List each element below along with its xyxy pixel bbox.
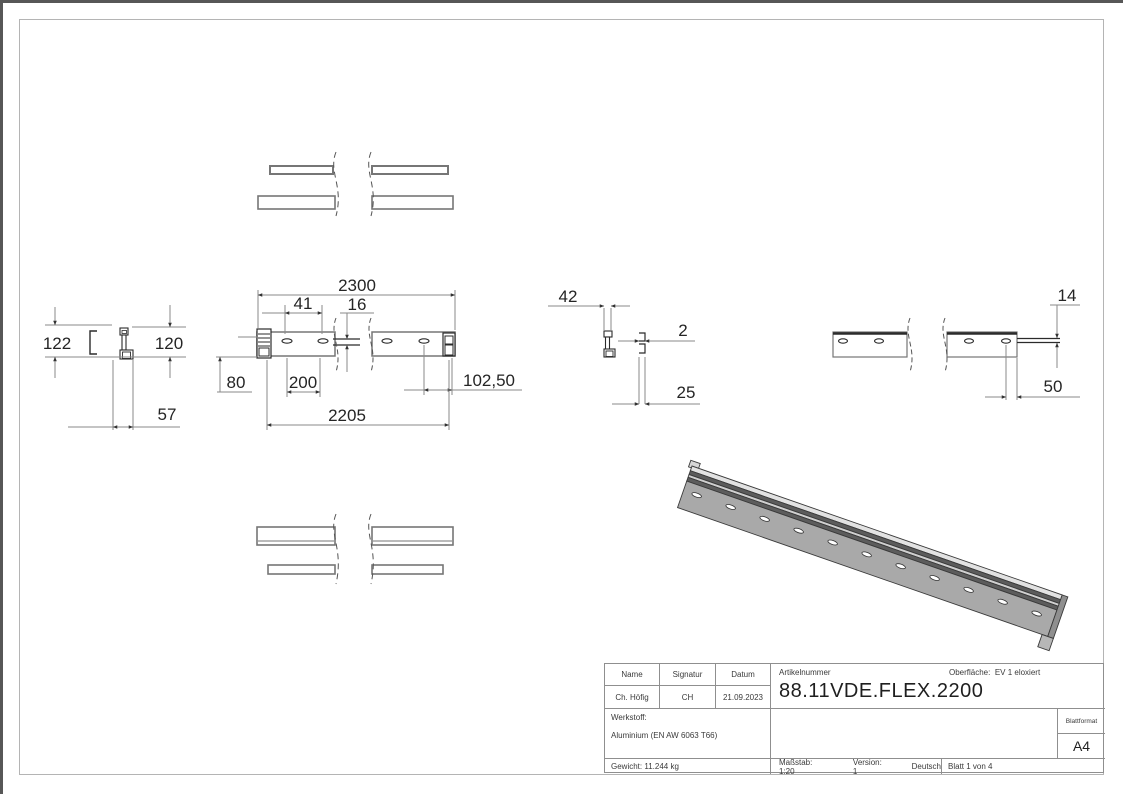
slot-section-lines: [333, 339, 360, 345]
scale-version-language-cell: Maßstab: 1:20 Version: 1 Deutsch: [771, 759, 942, 774]
middle-section-view: 42 2 25: [548, 287, 700, 404]
left-end-block: [257, 329, 271, 358]
oberflaeche-label: Oberfläche:: [949, 668, 990, 677]
dim-bottom-edge: 80: [227, 373, 246, 392]
header-datum: Datum: [716, 664, 771, 686]
value-name: Ch. Höfig: [605, 686, 660, 709]
dim-overall-height: 122: [43, 334, 71, 353]
value-datum: 21.09.2023: [716, 686, 771, 709]
dim-top-width: 42: [559, 287, 578, 306]
version: Version: 1: [853, 758, 888, 776]
rail-web-face: [678, 481, 1057, 636]
dim-tab-thickness: 14: [1058, 286, 1077, 305]
end-tab-lines: [1017, 339, 1060, 343]
left-section-view: 122 120 57: [43, 305, 186, 430]
rail-top-lip: [690, 466, 1062, 600]
isometric-view: [670, 460, 1069, 650]
dim-hole-pitch: 200: [289, 373, 317, 392]
reference-bracket: [90, 331, 97, 354]
rail-groove: [689, 471, 1061, 604]
blattformat-value: A4: [1058, 734, 1105, 759]
dim-bottom-width: 25: [677, 383, 696, 402]
front-view-dimensions: [216, 290, 522, 430]
title-block: Name Signatur Datum Ch. Höfig CH 21.09.2…: [604, 663, 1104, 773]
dim-first-hole: 41: [294, 294, 313, 313]
drawing-sheet: 2300 41 16 80 200 102,50 2205: [0, 0, 1123, 794]
section-profile: [604, 331, 615, 357]
header-signatur: Signatur: [660, 664, 716, 686]
section-profile: [120, 328, 133, 359]
massstab: Maßstab: 1:20: [779, 758, 829, 776]
rail-rib: [688, 474, 1059, 606]
top-view: [258, 152, 453, 216]
blatt: Blatt 1 von 4: [942, 759, 1105, 774]
break-line: [369, 514, 374, 584]
dim-end-hole: 102,50: [463, 371, 515, 390]
dim-total-length: 2300: [338, 276, 376, 295]
werkstoff-cell: Werkstoff: Aluminium (EN AW 6063 T66): [605, 709, 771, 759]
oberflaeche-value: EV 1 eloxiert: [995, 668, 1040, 677]
right-end-block: [443, 333, 455, 356]
werkstoff-value: Aluminium (EN AW 6063 T66): [611, 731, 717, 740]
empty-cell: [771, 709, 1058, 759]
artikelnummer-cell: Artikelnummer Oberfläche: EV 1 eloxiert …: [771, 664, 1105, 709]
dim-last-hole: 50: [1044, 377, 1063, 396]
artikelnummer-value: 88.11VDE.FLEX.2200: [779, 680, 983, 703]
artikelnummer-label: Artikelnummer: [779, 668, 831, 677]
break-line: [369, 152, 374, 216]
dim-profile-depth: 57: [158, 405, 177, 424]
header-name: Name: [605, 664, 660, 686]
right-view: 14 50: [833, 286, 1080, 400]
oberflaeche: Oberfläche: EV 1 eloxiert: [949, 668, 1040, 677]
blattformat-label: Blattformat: [1058, 709, 1105, 734]
sprache: Deutsch: [912, 762, 941, 771]
dim-hole-span: 2205: [328, 406, 366, 425]
gewicht: Gewicht: 11.244 kg: [605, 759, 771, 774]
bottom-view: [257, 514, 453, 584]
werkstoff-label: Werkstoff:: [611, 713, 647, 722]
break-line: [908, 318, 912, 372]
dim-slot-width: 16: [348, 295, 367, 314]
wall-section-mark: [639, 333, 645, 353]
rail-groove: [687, 477, 1059, 610]
dim-body-height: 120: [155, 334, 183, 353]
dim-wall-thickness: 2: [678, 321, 687, 340]
value-signatur: CH: [660, 686, 716, 709]
